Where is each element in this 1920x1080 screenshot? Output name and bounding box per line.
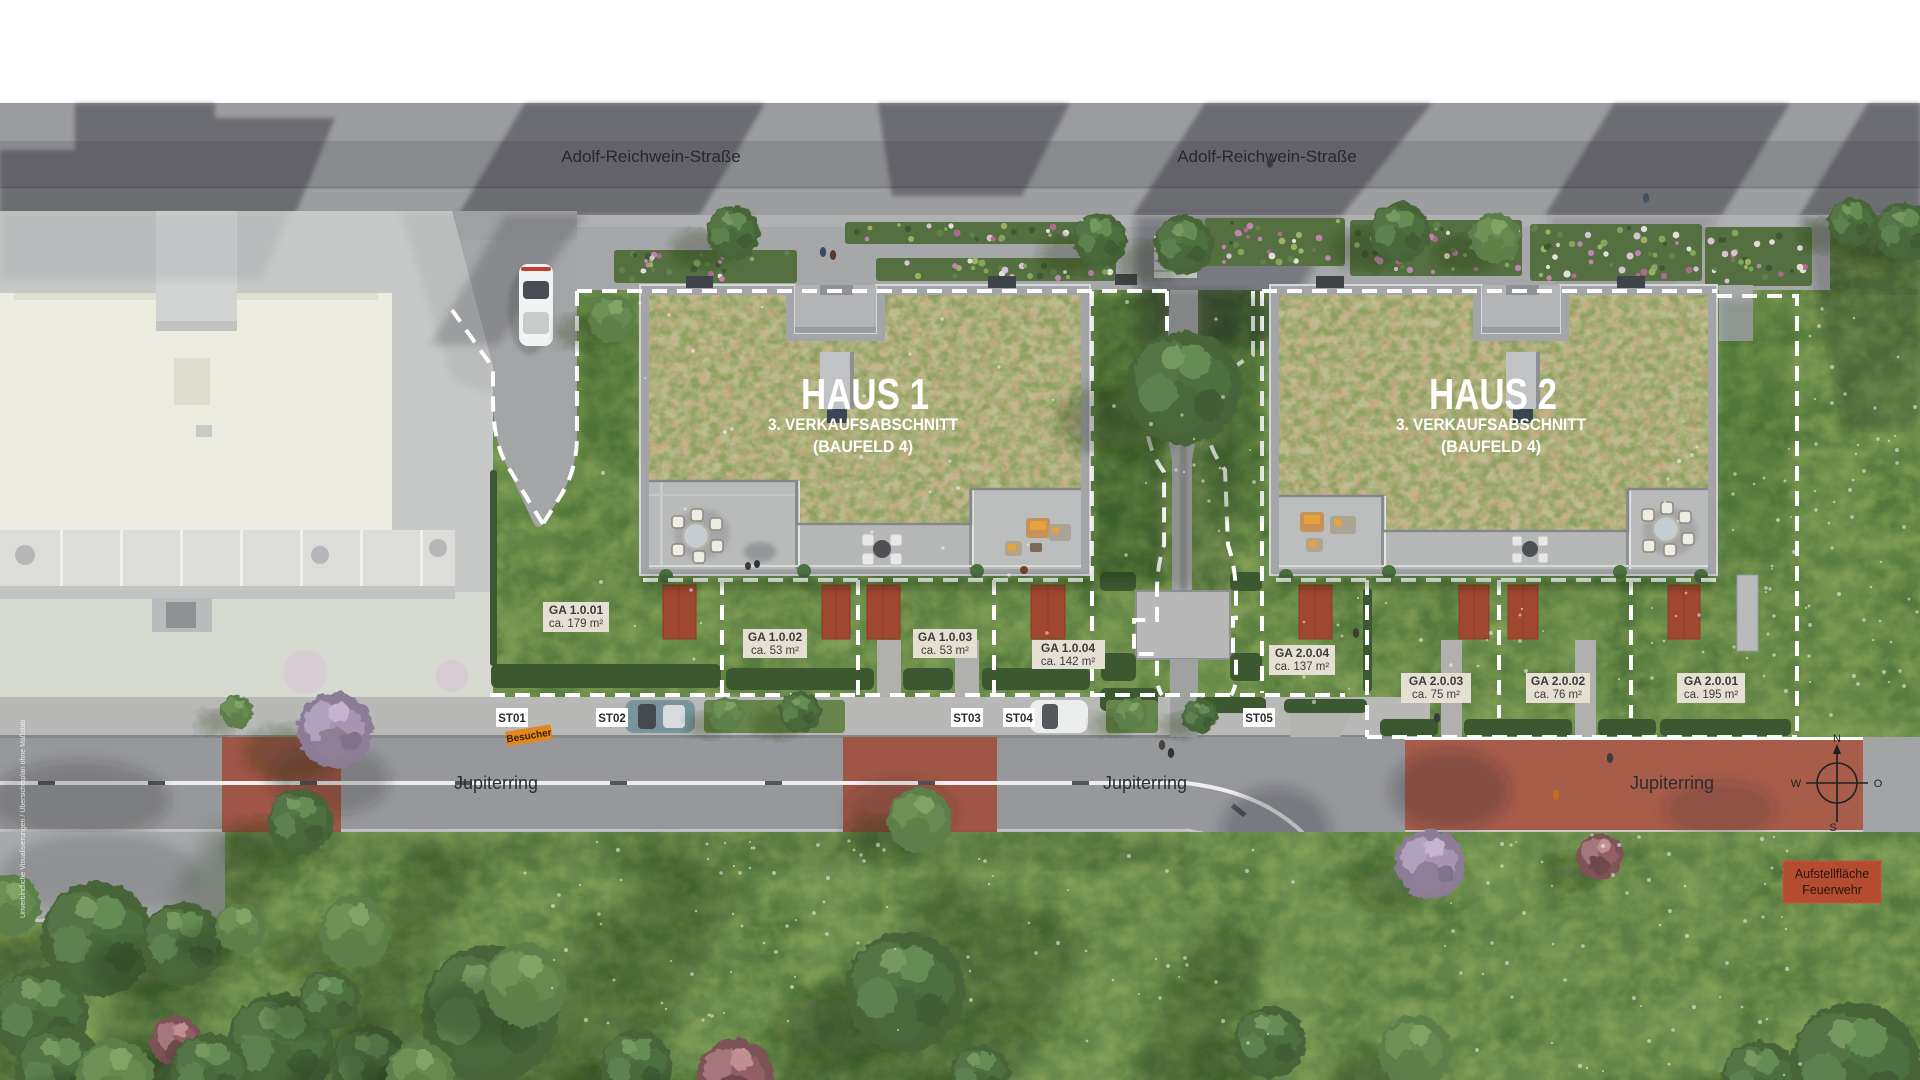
svg-text:S: S (1829, 822, 1836, 834)
svg-text:W: W (1791, 778, 1802, 790)
svg-text:Adolf-Reichwein-Straße: Adolf-Reichwein-Straße (561, 147, 741, 166)
svg-text:ca. 142 m²: ca. 142 m² (1041, 656, 1095, 668)
svg-text:ca. 179 m²: ca. 179 m² (549, 618, 603, 630)
svg-text:GA 2.0.01: GA 2.0.01 (1684, 674, 1739, 688)
svg-text:ca. 53 m²: ca. 53 m² (921, 645, 969, 657)
svg-text:ca. 137 m²: ca. 137 m² (1275, 661, 1329, 673)
svg-text:(BAUFELD 4): (BAUFELD 4) (813, 437, 913, 456)
svg-text:Jupiterring: Jupiterring (1103, 773, 1187, 793)
svg-text:Unverbindliche Visualisierunge: Unverbindliche Visualisierungen / Übersi… (19, 720, 27, 918)
svg-text:ca. 76 m²: ca. 76 m² (1534, 689, 1582, 701)
svg-text:GA 1.0.04: GA 1.0.04 (1041, 641, 1096, 655)
svg-text:ST02: ST02 (598, 713, 626, 725)
svg-text:GA 1.0.03: GA 1.0.03 (918, 630, 973, 644)
svg-text:ca. 53 m²: ca. 53 m² (751, 645, 799, 657)
svg-text:GA 2.0.02: GA 2.0.02 (1531, 674, 1586, 688)
svg-text:N: N (1833, 733, 1841, 745)
svg-text:Feuerwehr: Feuerwehr (1802, 883, 1862, 897)
svg-text:(BAUFELD 4): (BAUFELD 4) (1441, 437, 1541, 456)
svg-text:GA 1.0.01: GA 1.0.01 (549, 603, 604, 617)
svg-text:3. VERKAUFSABSCHNITT: 3. VERKAUFSABSCHNITT (768, 415, 959, 434)
svg-text:GA 2.0.04: GA 2.0.04 (1275, 646, 1330, 660)
svg-text:GA 2.0.03: GA 2.0.03 (1409, 674, 1464, 688)
svg-text:ST05: ST05 (1245, 713, 1273, 725)
svg-text:Jupiterring: Jupiterring (1630, 773, 1714, 793)
svg-text:HAUS 2: HAUS 2 (1429, 370, 1557, 419)
svg-text:ca. 75 m²: ca. 75 m² (1412, 689, 1460, 701)
svg-text:Jupiterring: Jupiterring (454, 773, 538, 793)
svg-text:Aufstellfläche: Aufstellfläche (1795, 867, 1869, 881)
svg-text:ST03: ST03 (953, 713, 981, 725)
svg-text:3. VERKAUFSABSCHNITT: 3. VERKAUFSABSCHNITT (1396, 415, 1587, 434)
svg-text:ST01: ST01 (498, 713, 526, 725)
svg-text:GA 1.0.02: GA 1.0.02 (748, 630, 803, 644)
svg-text:ca. 195 m²: ca. 195 m² (1684, 689, 1738, 701)
svg-text:O: O (1874, 778, 1883, 790)
svg-text:ST04: ST04 (1005, 713, 1033, 725)
